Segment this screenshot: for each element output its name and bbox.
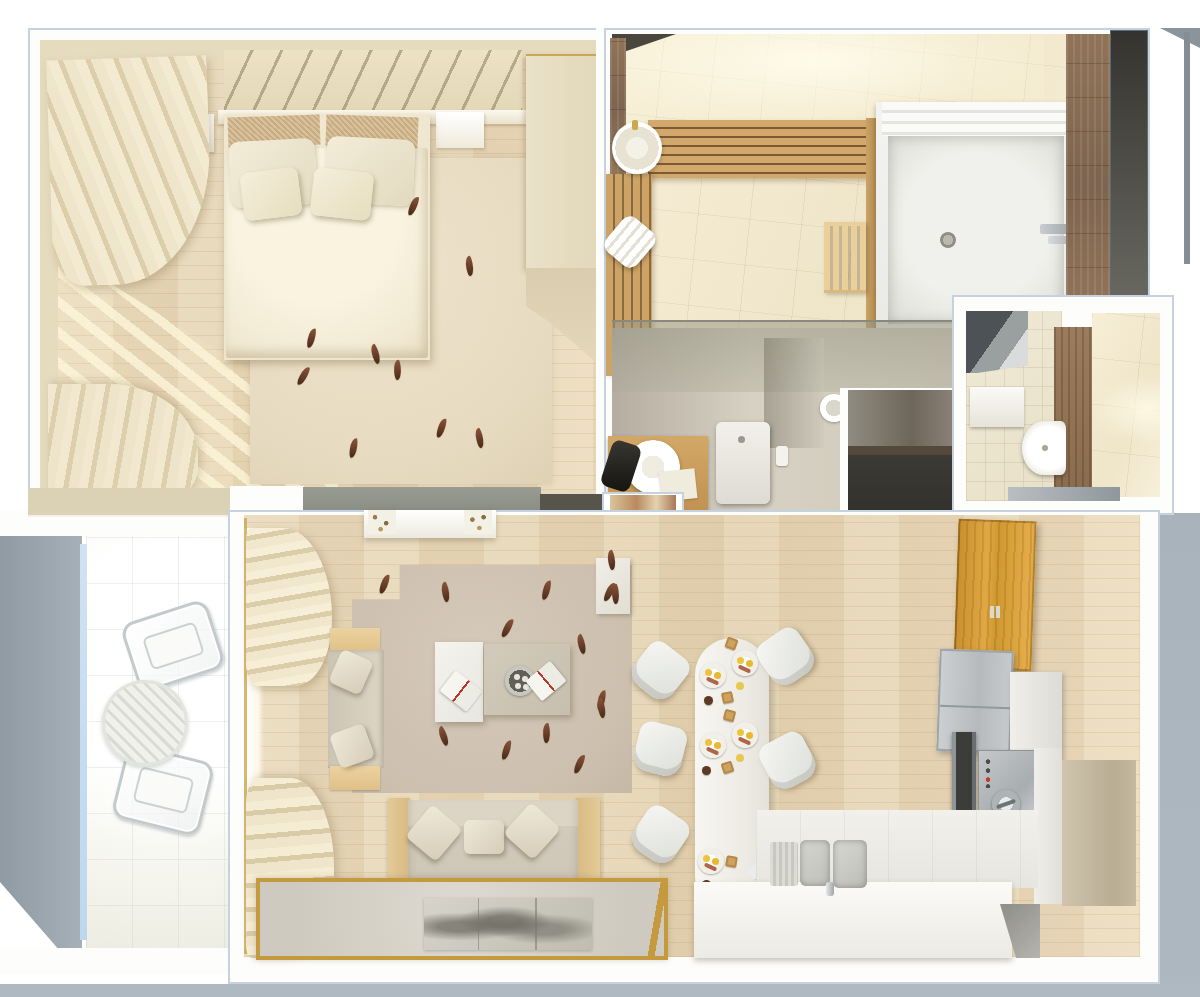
outside-bottom-band bbox=[0, 984, 1200, 997]
built-in-oven bbox=[952, 732, 976, 816]
wc-wall-light bbox=[1092, 375, 1160, 445]
kitchen-wall-cabinet bbox=[953, 519, 1036, 672]
balcony-table bbox=[102, 680, 188, 766]
sofa-armrest-left bbox=[388, 798, 410, 888]
breakfast-plate bbox=[700, 662, 726, 688]
apartment-floorplan-render bbox=[0, 0, 1200, 997]
sink-basin bbox=[800, 840, 830, 886]
shower-drain bbox=[940, 232, 956, 248]
sauna-bench-horizontal bbox=[648, 120, 870, 178]
balcony-concrete-slab bbox=[0, 536, 82, 948]
wc-room bbox=[952, 295, 1174, 515]
wc-basin-drain bbox=[1042, 445, 1048, 451]
toilet-flush-button bbox=[738, 436, 745, 443]
bathroom-right-tile-wall bbox=[1066, 34, 1112, 336]
breakfast-plate bbox=[698, 848, 724, 874]
kitchen-counter-bottom bbox=[756, 810, 1038, 888]
breakfast-plate bbox=[700, 732, 726, 758]
bedroom bbox=[28, 28, 614, 516]
countertop-washbasin bbox=[612, 122, 662, 174]
rug-gold-edge bbox=[645, 882, 671, 956]
sofa-armrest-right bbox=[576, 798, 600, 888]
shelf-trinkets bbox=[368, 510, 396, 534]
wardrobe bbox=[526, 54, 598, 270]
kitchen-counter-right bbox=[1034, 748, 1062, 904]
nightstand-right bbox=[436, 112, 484, 148]
breakfast-plate bbox=[732, 650, 758, 676]
cookie bbox=[704, 696, 713, 705]
basin-tap bbox=[632, 120, 638, 130]
cookie bbox=[702, 766, 711, 775]
wc-threshold bbox=[1008, 487, 1120, 501]
art-rug-print bbox=[424, 898, 592, 950]
cooktop-indicator-dots bbox=[984, 758, 992, 788]
toilet bbox=[716, 422, 770, 504]
headboard-slat-wall bbox=[224, 50, 522, 116]
sink-faucet bbox=[826, 882, 834, 896]
lemon-slice bbox=[736, 682, 744, 690]
loveseat-console-top bbox=[330, 628, 380, 652]
towel-radiator-bars bbox=[824, 222, 866, 293]
balcony-glazing-sliver bbox=[80, 544, 87, 940]
entry-mat-inset bbox=[610, 495, 676, 511]
outside-top-right-wedge bbox=[1160, 28, 1200, 48]
outside-right-line bbox=[1184, 32, 1190, 264]
breakfast-plate bbox=[732, 722, 758, 748]
cabinet-handle bbox=[990, 606, 994, 618]
shower-top-panel bbox=[882, 102, 1072, 136]
main-living-block bbox=[228, 510, 1160, 984]
toast bbox=[725, 855, 738, 868]
balcony bbox=[0, 510, 230, 975]
hall-doormat bbox=[848, 446, 954, 512]
kitchen-island bbox=[694, 882, 1012, 958]
toast bbox=[721, 691, 734, 704]
wc-shelf-cistern bbox=[970, 387, 1024, 427]
sink-basin bbox=[833, 840, 867, 888]
shelf-trinkets bbox=[464, 510, 492, 534]
toilet-paper-holder bbox=[776, 446, 788, 466]
kitchen-floor-shadow bbox=[1062, 760, 1136, 906]
lemon-slice bbox=[736, 754, 744, 762]
bed-cushion-small bbox=[310, 167, 375, 221]
mirror-cabinet-reflection bbox=[764, 338, 824, 448]
sink-drainboard bbox=[770, 842, 798, 886]
loveseat-console-bottom bbox=[330, 766, 380, 790]
dark-wardrobe-panel bbox=[1110, 30, 1148, 330]
bed-cushion-small bbox=[239, 167, 302, 222]
hall-upper-floor bbox=[848, 390, 954, 448]
interior-wall-top bbox=[303, 487, 541, 510]
entry-hall bbox=[840, 388, 962, 516]
wc-mirror-reflection bbox=[966, 311, 1028, 373]
balcony-bottom-wall bbox=[0, 948, 230, 974]
bedroom-bottom-wall bbox=[28, 488, 232, 517]
sofa-pillow bbox=[464, 820, 504, 854]
